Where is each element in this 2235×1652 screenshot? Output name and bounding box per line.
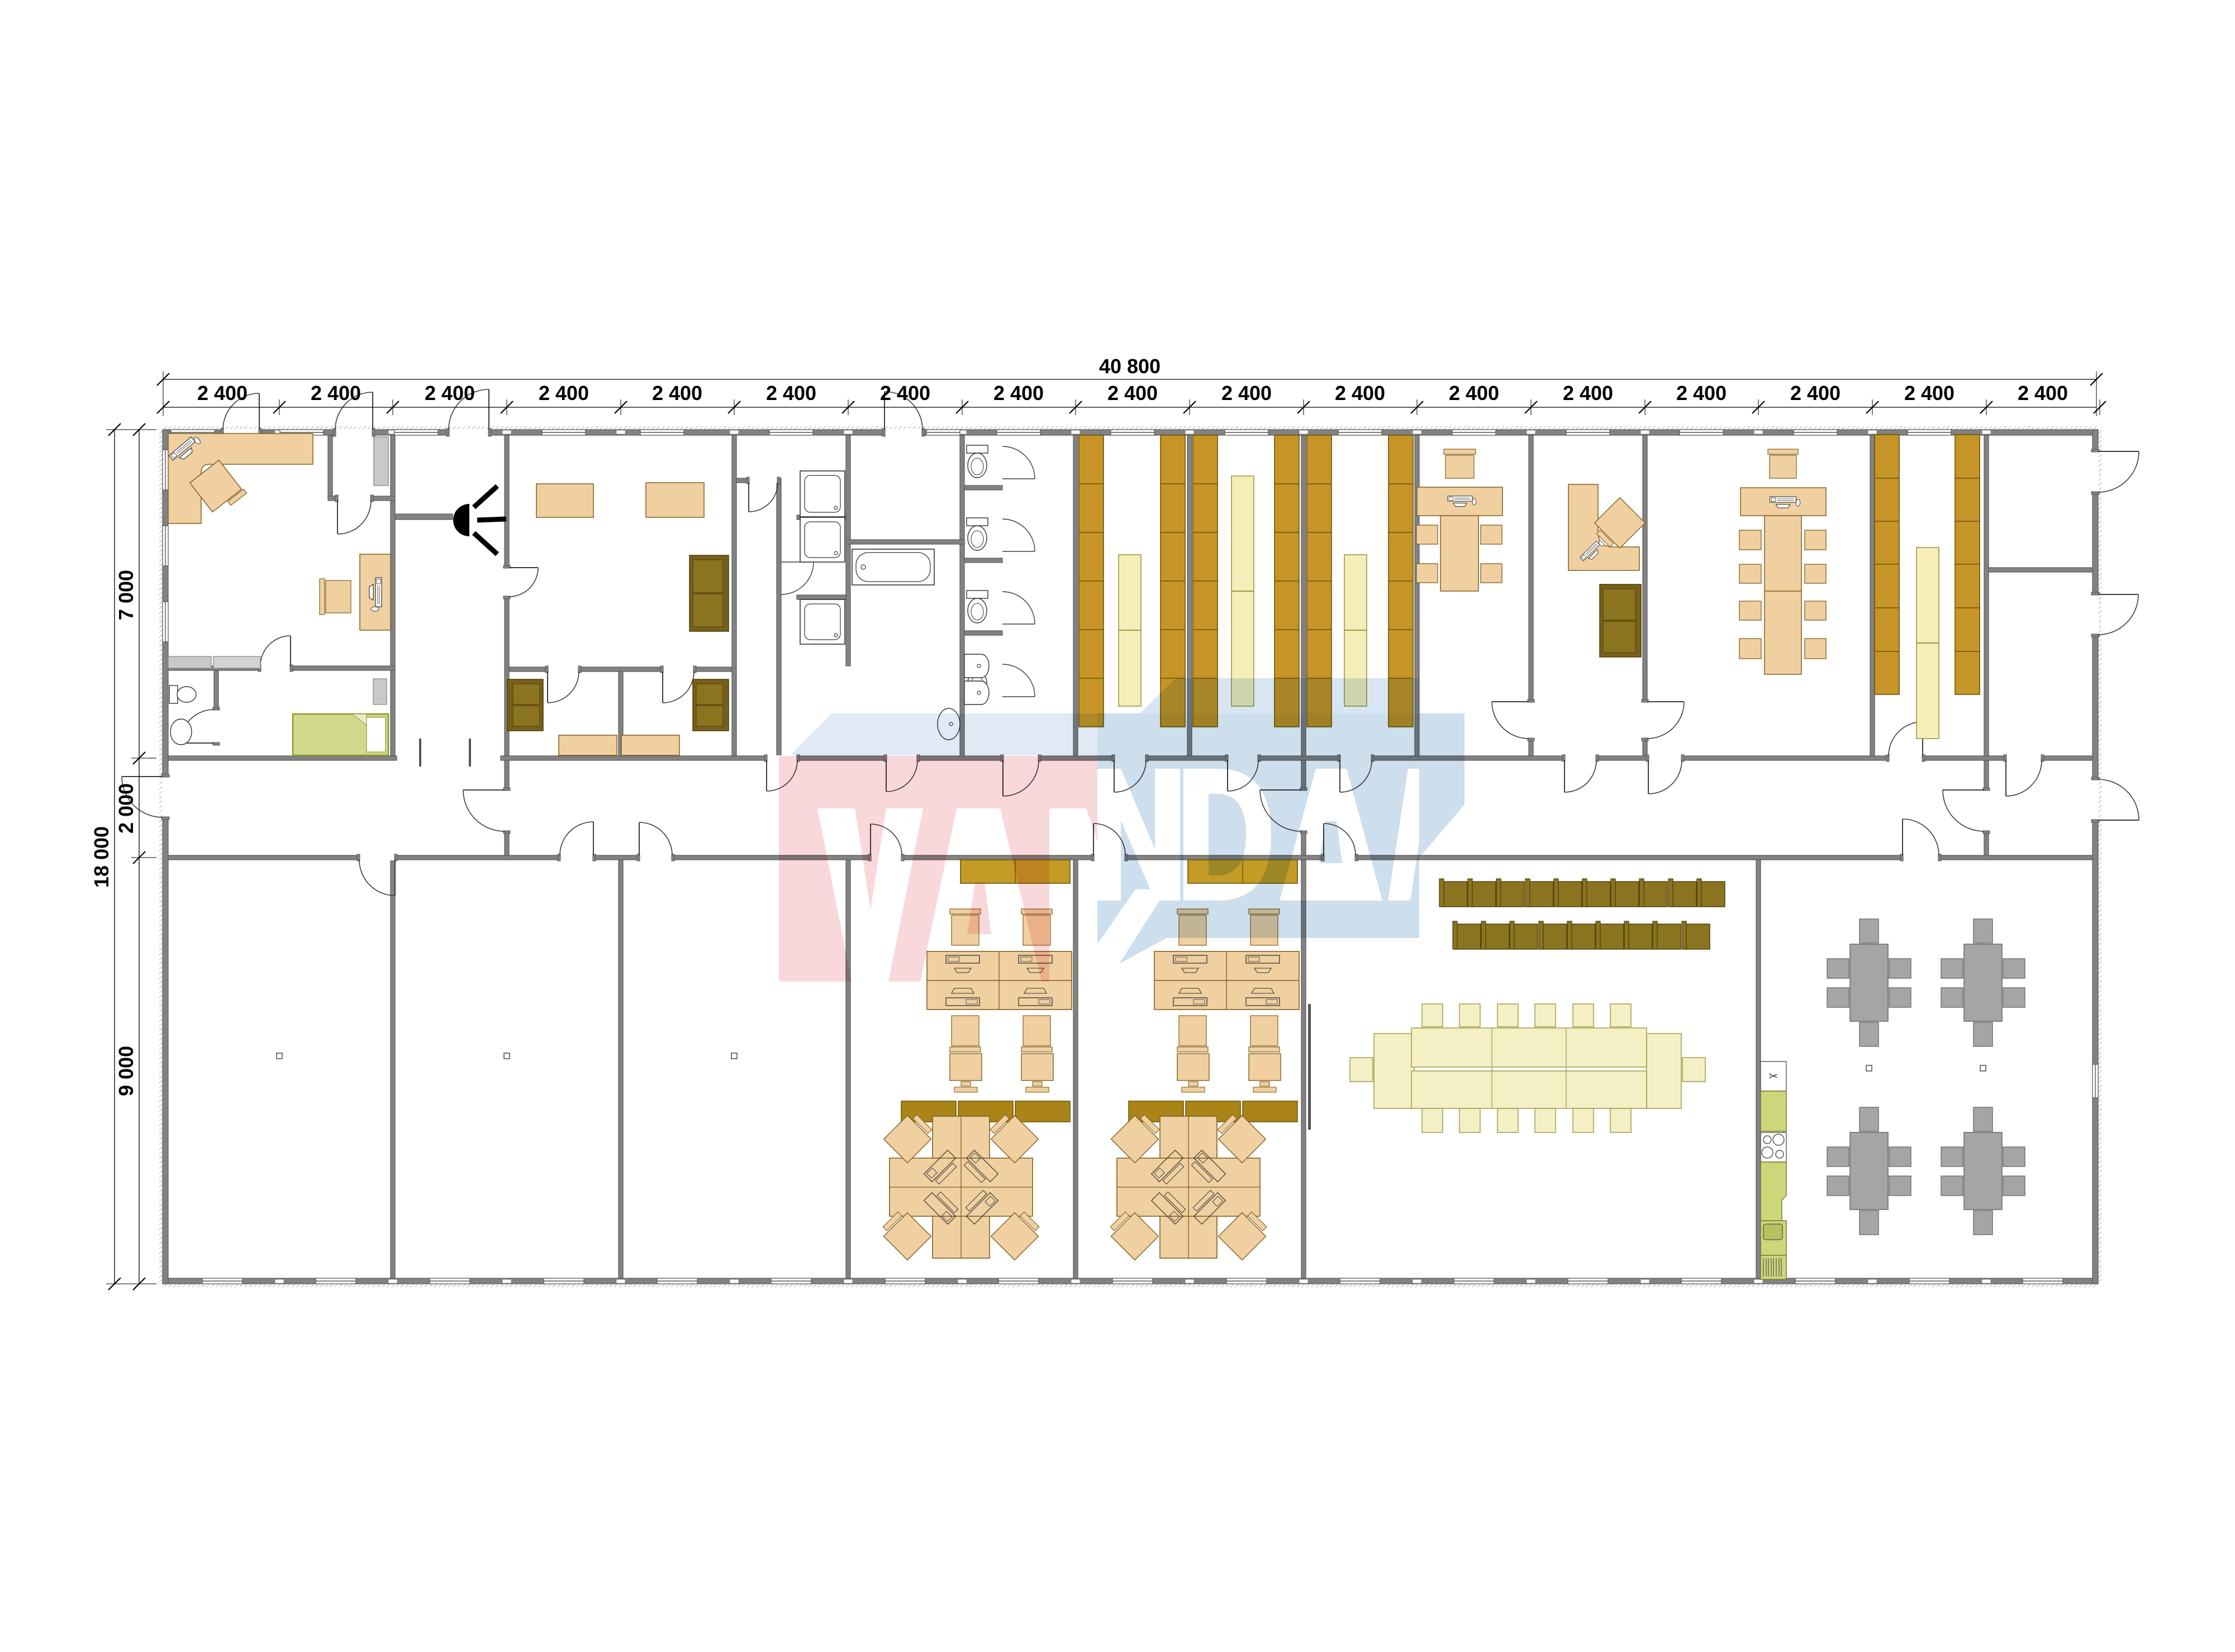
svg-text:2 400: 2 400 (539, 382, 589, 404)
svg-text:2 400: 2 400 (197, 382, 248, 404)
svg-text:2 400: 2 400 (1335, 382, 1385, 404)
svg-text:2 400: 2 400 (1790, 382, 1841, 404)
svg-text:2 400: 2 400 (425, 382, 475, 404)
svg-text:2 400: 2 400 (766, 382, 816, 404)
svg-text:2 400: 2 400 (2018, 382, 2068, 404)
svg-text:18 000: 18 000 (90, 826, 113, 888)
svg-text:2 400: 2 400 (1676, 382, 1727, 404)
svg-text:2 400: 2 400 (311, 382, 361, 404)
svg-text:7 000: 7 000 (115, 570, 137, 620)
svg-text:2 400: 2 400 (880, 382, 930, 404)
svg-text:2 400: 2 400 (1563, 382, 1613, 404)
svg-text:40 800: 40 800 (1099, 355, 1161, 378)
svg-text:9 000: 9 000 (115, 1046, 137, 1096)
svg-text:2 400: 2 400 (1904, 382, 1955, 404)
svg-text:2 400: 2 400 (993, 382, 1044, 404)
svg-text:2 400: 2 400 (1107, 382, 1158, 404)
svg-text:2 400: 2 400 (1449, 382, 1499, 404)
svg-text:✂: ✂ (1769, 1070, 1779, 1083)
svg-text:2 400: 2 400 (1221, 382, 1272, 404)
svg-text:2 000: 2 000 (115, 783, 137, 834)
svg-text:2 400: 2 400 (652, 382, 702, 404)
